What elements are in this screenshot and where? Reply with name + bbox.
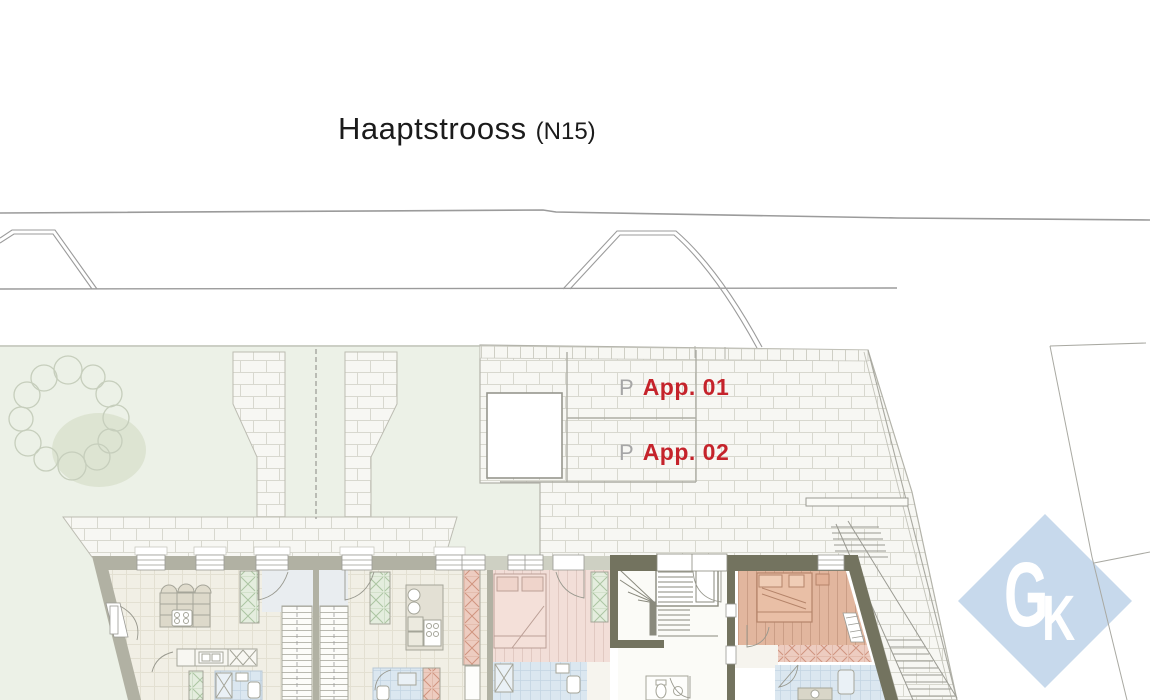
unit3-closet <box>591 572 608 622</box>
street-name: Haaptstrooss <box>338 111 527 147</box>
street-title: Haaptstrooss (N15) <box>338 111 596 147</box>
window <box>434 547 465 570</box>
unit3-toilet <box>567 676 580 693</box>
unit2-closet <box>370 572 390 624</box>
window <box>462 555 485 570</box>
party-wall <box>313 556 319 700</box>
stairwall-door-gap <box>726 604 736 617</box>
road-markings <box>0 210 1150 348</box>
parking-label: App. 01 <box>643 374 730 401</box>
cooktop <box>172 610 192 626</box>
left-door-leaf <box>110 606 118 634</box>
road-bottom-edge <box>0 288 897 289</box>
parking-spot-app02: P App. 02 <box>619 439 729 466</box>
unit3-bath-sink <box>556 664 569 673</box>
window <box>254 547 290 570</box>
window <box>194 547 226 570</box>
window <box>340 547 374 570</box>
traffic-island-left-outer <box>0 230 97 289</box>
unit2-store <box>465 666 480 700</box>
traffic-island-left-inner <box>0 234 92 289</box>
stairhall-wall-right <box>727 664 735 700</box>
unit1-closet-small <box>189 671 203 700</box>
stairhall-wall-bottom <box>610 640 664 648</box>
party-wall <box>487 556 493 700</box>
stairhall-wall-right <box>727 568 735 604</box>
pillow <box>497 577 518 591</box>
unit3-entry-opening <box>553 555 584 570</box>
unit1-bath-sink <box>236 673 248 681</box>
pillow <box>789 575 804 587</box>
wc-toilet <box>656 684 666 698</box>
site-plan-drawing: Haaptstrooss (N15) P App. 01 P App. 02 G… <box>0 0 1150 700</box>
parking-marker: P <box>619 375 634 401</box>
parking-marker: P <box>619 440 634 466</box>
unit2-tub <box>398 673 416 685</box>
garden-structure <box>487 393 562 478</box>
window <box>508 555 543 570</box>
unit1-closet <box>240 571 259 623</box>
stair-spine <box>650 602 656 635</box>
kitchen-sink-bowl <box>408 589 420 601</box>
unit4-tile-strip <box>778 645 872 662</box>
unit2-wardrobe <box>463 568 480 665</box>
kitchen-sink-bowl <box>408 602 420 614</box>
street-reference: (N15) <box>536 118 596 146</box>
window <box>818 555 844 570</box>
building-floorplan <box>92 547 898 700</box>
window <box>135 547 167 570</box>
plan-linework <box>0 0 1150 700</box>
unit4-bath-sink <box>811 690 819 698</box>
stairhall-wc <box>646 676 688 700</box>
pillow <box>522 577 543 591</box>
nightstand <box>816 574 829 585</box>
logo-letter-k: K <box>1042 586 1075 650</box>
unit1-toilet <box>248 682 260 698</box>
parking-label: App. 02 <box>643 439 730 466</box>
road-top-edge <box>0 210 1150 220</box>
stairhall-wall-left <box>610 568 618 648</box>
unit3-corridor-floor <box>587 662 610 700</box>
main-entrance-opening <box>657 554 727 571</box>
unit4-corridor-floor <box>735 645 778 668</box>
retaining-wall-cap <box>806 498 908 506</box>
unit2-toilet <box>377 686 389 700</box>
pillow <box>759 575 782 587</box>
kerb-edging-course <box>480 346 868 361</box>
parking-spot-app01: P App. 01 <box>619 374 729 401</box>
unit2-tiles <box>423 668 440 700</box>
stairhall-wall-right <box>727 616 735 646</box>
tree-shadow <box>52 413 146 487</box>
unit2-hall-floor <box>319 568 348 612</box>
unit4-tub <box>838 670 854 694</box>
stairwall-door-gap <box>726 646 736 664</box>
